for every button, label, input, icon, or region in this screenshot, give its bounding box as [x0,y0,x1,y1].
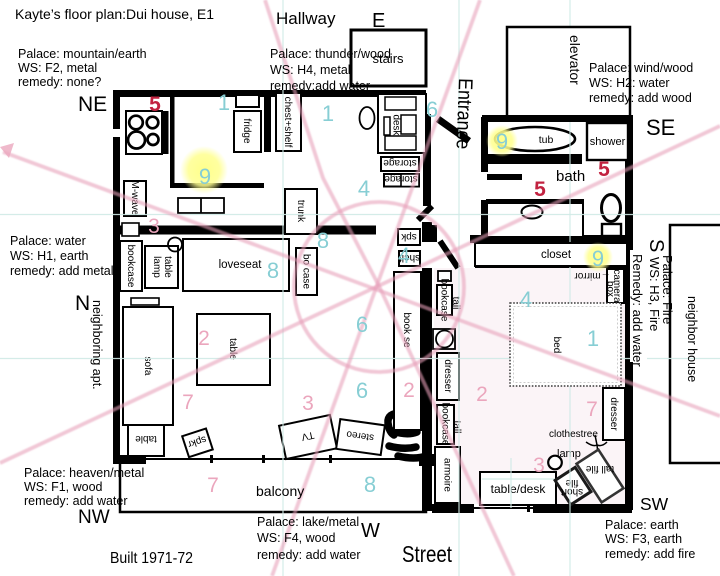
svg-text:bookcase: bookcase [125,245,136,288]
svg-text:WS: H4, metal: WS: H4, metal [270,63,351,77]
svg-text:9: 9 [199,164,211,189]
svg-text:6: 6 [356,378,368,403]
svg-text:bo case: bo case [301,254,312,289]
svg-text:dresser: dresser [442,359,453,393]
svg-text:Palace: heaven/metal: Palace: heaven/metal [24,466,144,480]
svg-text:remedy: add metal: remedy: add metal [10,264,114,278]
svg-text:WS: F3, earth: WS: F3, earth [605,532,682,546]
svg-text:stairs: stairs [372,51,404,66]
svg-text:lamp: lamp [151,256,162,278]
svg-text:E: E [372,10,385,32]
svg-text:←mirror: ←mirror [574,270,611,281]
svg-text:elevator: elevator [567,35,583,85]
svg-text:tall file: tall file [585,463,614,474]
svg-text:S: S [645,239,667,252]
svg-text:storage: storage [383,157,417,168]
svg-text:table/desk: table/desk [491,482,547,496]
svg-text:neighboring apt.: neighboring apt. [90,300,104,390]
svg-text:remedy: add water: remedy: add water [24,494,128,508]
svg-text:4: 4 [398,243,410,268]
svg-text:Palace: lake/metal: Palace: lake/metal [257,515,359,529]
svg-text:7: 7 [182,391,194,414]
svg-text:2: 2 [476,383,488,406]
svg-text:bed: bed [551,337,562,354]
svg-text:7: 7 [207,474,219,497]
svg-text:1: 1 [587,326,599,351]
svg-text:6: 6 [356,312,368,337]
svg-text:neighbor house: neighbor house [685,296,699,382]
svg-text:Palace: mountain/earth: Palace: mountain/earth [18,47,147,61]
svg-text:clothestree: clothestree [549,429,598,440]
svg-text:balcony: balcony [256,483,304,499]
svg-text:remedy: none?: remedy: none? [18,75,101,89]
svg-text:fridge: fridge [241,118,252,143]
svg-text:remedy: add wood: remedy: add wood [589,91,692,105]
svg-text:closet: closet [541,249,572,261]
svg-text:WS: F1, wood: WS: F1, wood [24,480,103,494]
svg-text:chest+shelf: chest+shelf [282,97,293,148]
svg-text:6: 6 [426,97,438,122]
svg-text:Built 1971-72: Built 1971-72 [110,550,193,567]
svg-text:WS: H1, earth: WS: H1, earth [10,249,89,263]
svg-text:spk: spk [400,231,417,242]
svg-text:W: W [361,520,380,542]
svg-text:table: table [135,433,157,444]
svg-text:WS: F2, metal: WS: F2, metal [18,61,97,75]
svg-text:2: 2 [403,379,415,402]
svg-text:5: 5 [534,178,546,201]
svg-text:1: 1 [322,101,334,126]
svg-text:file: file [565,477,578,488]
svg-text:9: 9 [592,246,604,271]
svg-text:WS: H2: water: WS: H2: water [589,76,670,90]
svg-text:Remedy: add water: Remedy: add water [630,254,645,367]
svg-text:desk: desk [391,114,402,136]
svg-text:5: 5 [598,158,610,181]
svg-text:sofa: sofa [142,357,153,376]
svg-text:Palace: wind/wood: Palace: wind/wood [589,61,693,75]
svg-text:N: N [75,292,90,315]
svg-text:Palace: earth: Palace: earth [605,518,679,532]
svg-text:table: table [162,256,173,278]
svg-text:4: 4 [520,287,532,312]
svg-text:8: 8 [317,228,329,253]
svg-text:3: 3 [148,215,160,238]
svg-text:3: 3 [533,454,545,477]
svg-text:Entrance: Entrance [452,78,476,150]
svg-text:8: 8 [364,472,376,497]
svg-text:armoire: armoire [442,458,453,492]
svg-text:SW: SW [640,494,669,514]
svg-text:remedy: add water: remedy: add water [257,548,361,562]
svg-text:Palace: water: Palace: water [10,234,86,248]
svg-text:3: 3 [302,392,314,415]
svg-text:tall: tall [451,421,462,434]
svg-text:1: 1 [218,90,230,115]
svg-text:SE: SE [646,115,675,140]
svg-text:2: 2 [198,327,210,350]
svg-text:loveseat: loveseat [219,259,263,271]
svg-text:Street: Street [402,541,452,567]
svg-text:7: 7 [586,398,598,421]
svg-text:4: 4 [358,176,370,201]
svg-text:WS: H3, Fire: WS: H3, Fire [647,257,662,331]
svg-text:WS: F4, wood: WS: F4, wood [257,531,336,545]
svg-text:NW: NW [78,507,110,528]
svg-text:Hallway: Hallway [276,9,336,28]
svg-text:5: 5 [149,93,161,116]
svg-text:remedy: add fire: remedy: add fire [605,547,695,561]
svg-text:bath: bath [556,168,585,185]
svg-text:tub: tub [539,134,554,146]
svg-text:box: box [605,281,616,297]
svg-text:9: 9 [496,129,508,154]
svg-text:Kayte’s floor plan:Dui house,: Kayte’s floor plan:Dui house, E1 [15,6,214,22]
svg-text:dresser: dresser [608,397,619,431]
svg-text:shower: shower [590,136,626,148]
svg-text:8: 8 [267,258,279,283]
svg-text:trunk: trunk [295,200,306,223]
svg-text:remedy:add water: remedy:add water [270,79,370,93]
svg-text:NE: NE [78,93,107,116]
